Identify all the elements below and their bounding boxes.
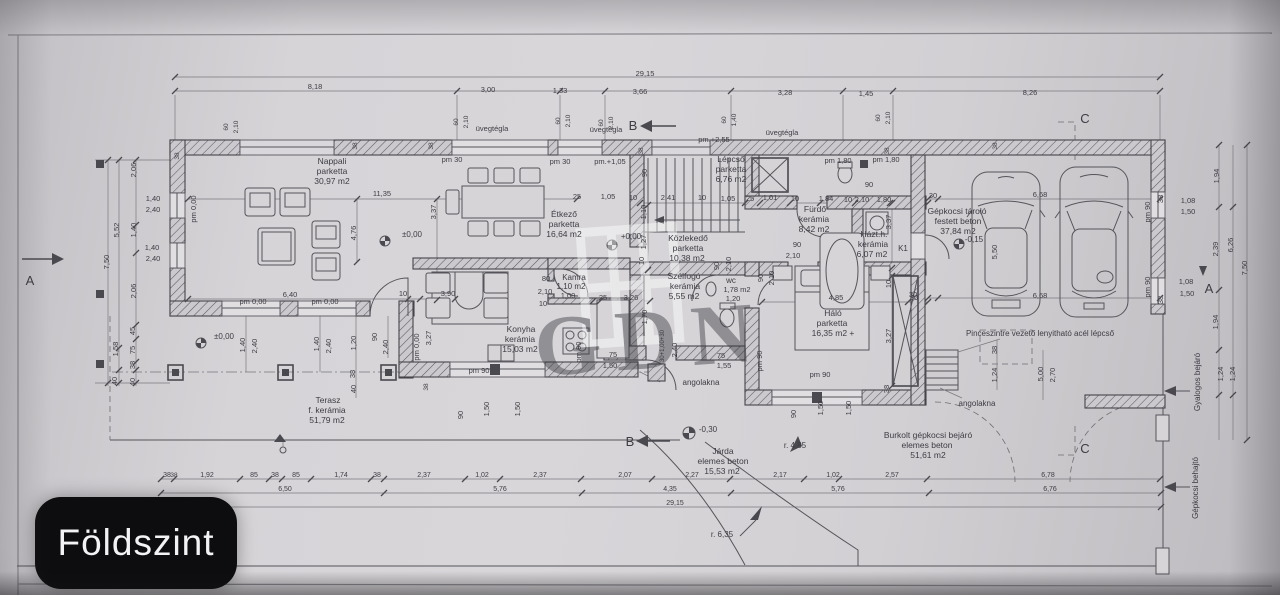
photographed-floor-plan: GDN 29,158,183,001,333,663,281,458,26602…: [0, 0, 1280, 595]
plan-label: 38: [352, 142, 359, 150]
plan-label: 38: [348, 370, 357, 378]
plan-label: pm 90: [574, 342, 583, 363]
plan-label: 1,24: [990, 368, 999, 383]
plan-label: parketta: [673, 243, 704, 253]
plan-label: 1,20: [349, 336, 358, 351]
plan-label: 1,94: [1212, 169, 1221, 184]
plan-label: 38: [174, 152, 181, 160]
plan-label: 1,55: [717, 361, 732, 370]
plan-label: Étkező: [551, 209, 577, 219]
plan-label: 90: [793, 240, 801, 249]
plan-label: 2,40: [324, 339, 333, 354]
plan-label: 90: [370, 333, 379, 341]
plan-label: 90: [789, 410, 798, 418]
plan-label: 6,68: [1033, 291, 1048, 300]
plan-label: A: [26, 273, 35, 288]
plan-label: üvegtégla: [476, 124, 509, 133]
plan-label: 6,78: [1041, 472, 1055, 479]
plan-label: Pinceszintre vezető lenyitható acél lépc…: [966, 329, 1115, 338]
plan-label: 1,05: [601, 192, 616, 201]
plan-label: 1,92: [200, 472, 214, 479]
plan-label: Konyha: [507, 324, 536, 334]
plan-label: -0,15: [965, 235, 984, 244]
plan-label: 8,42 m2: [799, 224, 830, 234]
plan-label: 1,80: [877, 195, 892, 204]
plan-label: 1,78 m2: [723, 285, 750, 294]
plan-label: pm 90: [755, 351, 764, 372]
plan-label: 1,45: [859, 89, 874, 98]
plan-label: 38: [373, 472, 381, 479]
plan-label: 29,15: [636, 69, 655, 78]
plan-label: 2,06: [129, 163, 138, 178]
plan-label: 2,40: [381, 340, 390, 355]
plan-label: 2,40: [146, 254, 161, 263]
plan-label: 1,20: [726, 294, 741, 303]
plan-label: 3,00: [481, 85, 496, 94]
plan-label: 7,50: [1240, 261, 1249, 276]
plan-label: 75: [609, 350, 617, 359]
plan-label: 51,61 m2: [910, 450, 946, 460]
plan-label: 1,74: [334, 472, 348, 479]
plan-label: 5,52: [112, 223, 121, 238]
plan-label: 6,40: [283, 290, 298, 299]
plan-label: parketta: [716, 164, 747, 174]
plan-label: 38: [271, 472, 279, 479]
plan-label: 80: [542, 274, 550, 283]
plan-label: 85: [292, 472, 300, 479]
plan-label: 10: [539, 299, 547, 308]
plan-label: kerámia: [670, 281, 701, 291]
plan-label: 2,10: [855, 195, 870, 204]
plan-label: wc: [725, 276, 736, 285]
plan-label: 38: [428, 142, 435, 150]
plan-label: 38: [884, 147, 891, 155]
plan-label: 6,26: [1226, 238, 1235, 253]
plan-label: 2,10: [463, 115, 470, 128]
plan-label: 2,57: [885, 472, 899, 479]
plan-label: 60: [721, 116, 728, 124]
plan-label: 2,40: [146, 205, 161, 214]
plan-label: 10: [884, 280, 893, 288]
plan-label: 40: [128, 378, 137, 386]
plan-label: 45: [128, 327, 137, 335]
plan-label: üvegtégla: [590, 125, 623, 134]
plan-label: 1,27: [639, 235, 648, 250]
plan-label: 1,50: [1181, 207, 1196, 216]
plan-label: 30,97 m2: [314, 176, 350, 186]
plan-label: parketta: [549, 219, 580, 229]
plan-label: 1,40: [238, 338, 247, 353]
plan-label: 60: [223, 123, 230, 131]
plan-label: 1,94: [1211, 315, 1220, 330]
plan-label: 1,50: [844, 401, 853, 416]
plan-label: pm.+2,55: [698, 135, 729, 144]
plan-label: 2,10: [565, 114, 572, 127]
plan-label: 6,50: [278, 486, 292, 493]
plan-label: 3,66: [633, 87, 648, 96]
plan-label: -0,30: [699, 425, 718, 434]
plan-label: 2,17: [773, 472, 787, 479]
plan-label: pm 1,80: [824, 156, 851, 165]
plan-label: 1,00: [561, 291, 576, 300]
plan-label: 60: [453, 118, 460, 126]
plan-label: 38: [423, 383, 430, 391]
plan-label: 1,05: [721, 194, 736, 203]
plan-label: C: [1080, 441, 1089, 456]
plan-label: 6,76 m2: [716, 174, 747, 184]
plan-label: 1,70: [640, 310, 649, 325]
plan-label: 4,76: [349, 226, 358, 241]
gdn-watermark: GDN: [527, 220, 771, 395]
plan-label: Háló: [824, 308, 842, 318]
plan-label: 2,10: [786, 251, 801, 260]
plan-label: Lépcső: [717, 154, 745, 164]
plan-label: 2,40: [670, 343, 679, 358]
plan-label: 2,27: [685, 472, 699, 479]
plan-label: 16,64 m2: [546, 229, 582, 239]
plan-label: 10: [629, 193, 637, 202]
plan-label: Terasz: [315, 395, 340, 405]
plan-label: pm 90: [810, 370, 831, 379]
plan-label: pm 1,80: [872, 155, 899, 164]
plan-label: 8,18: [308, 82, 323, 91]
plan-label: kerámia: [505, 334, 536, 344]
plan-label: 7,50: [102, 255, 111, 270]
plan-label: angolakna: [959, 399, 996, 408]
plan-label: 1,50: [513, 402, 522, 417]
floor-title: Földszint: [57, 522, 214, 564]
plan-label: A: [1205, 281, 1214, 296]
plan-label: parketta: [817, 318, 848, 328]
plan-label: 3,37: [429, 205, 438, 220]
plan-label: elemes beton: [901, 440, 952, 450]
plan-label: Gépkocsi behajtó: [1191, 457, 1200, 519]
plan-label: 2,37: [533, 472, 547, 479]
plan-label: Gyalogos bejáró: [1193, 352, 1202, 411]
plan-label: 2,06: [129, 284, 138, 299]
plan-label: pm 0,00: [189, 195, 198, 222]
plan-label: 1,50: [482, 402, 491, 417]
plan-label: ±0,00: [402, 230, 423, 239]
plan-label: 1,40: [312, 337, 321, 352]
plan-label: K1: [898, 244, 908, 253]
plan-label: 38: [990, 346, 999, 354]
plan-label: Járda: [712, 446, 734, 456]
plan-label: 38: [992, 142, 999, 150]
plan-label: 1,50: [1180, 289, 1195, 298]
plan-label: 1,40: [146, 194, 161, 203]
plan-label: 90: [456, 411, 465, 419]
plan-label: pm 0,00: [412, 333, 421, 360]
plan-label: Közlekedő: [668, 233, 708, 243]
plan-label: 16,35 m2 +: [812, 328, 855, 338]
plan-label: pm 30: [442, 155, 463, 164]
plan-label: 5,76: [493, 486, 507, 493]
plan-label: 1,24: [1228, 367, 1237, 382]
plan-label: 10,38 m2: [669, 253, 705, 263]
plan-label: 15,03 m2: [502, 344, 538, 354]
plan-label: 51,79 m2: [309, 415, 345, 425]
plan-label: 8,26: [1023, 88, 1038, 97]
plan-label: 3,37: [884, 215, 893, 230]
plan-label: 90: [712, 262, 721, 270]
plan-label: 2,10: [885, 111, 892, 124]
plan-label: 15,53 m2: [704, 466, 740, 476]
plan-label: 2,10: [724, 257, 733, 272]
plan-label: 30: [929, 191, 937, 200]
plan-label: 5,50: [990, 245, 999, 260]
plan-label: 1,40: [145, 243, 160, 252]
plan-label: pm 0,00: [239, 297, 266, 306]
plan-label: 60: [555, 117, 562, 125]
plan-label: 38: [638, 147, 645, 155]
plan-label: 4,85: [829, 293, 844, 302]
plan-label: 4,35: [663, 486, 677, 493]
plan-label: 2,40: [250, 339, 259, 354]
plan-label: 40: [349, 385, 358, 393]
plan-label: 1,10 m2: [557, 282, 586, 291]
plan-label: pm 30: [550, 157, 571, 166]
plan-label: 2,39: [1211, 242, 1220, 257]
plan-label: 10: [637, 257, 646, 265]
plan-label: B: [629, 118, 638, 133]
plan-label: 1,02: [475, 472, 489, 479]
plan-label: 3,28: [778, 88, 793, 97]
plan-label: 1,24: [1216, 367, 1225, 382]
plan-label: 3,27: [424, 331, 433, 346]
plan-label: pm 90: [1143, 202, 1152, 223]
plan-label: parketta: [317, 166, 348, 176]
plan-label: 85: [250, 472, 258, 479]
plan-label: 2,07: [618, 472, 632, 479]
plan-label: 11,35: [373, 189, 391, 198]
plan-label: 1,01: [763, 193, 778, 202]
plan-label: 2,70: [1048, 368, 1057, 383]
plan-label: 2,10: [233, 120, 240, 133]
plan-label: kerámia: [799, 214, 830, 224]
plan-label: Kamra: [562, 273, 586, 282]
plan-label: 1,02: [826, 472, 840, 479]
plan-label: pm 0,00: [311, 297, 338, 306]
plan-label: 5,76: [831, 486, 845, 493]
plan-label: pm.+1,05: [594, 157, 625, 166]
plan-label: pm 90: [1143, 277, 1152, 298]
plan-label: Gépkocsi tároló: [927, 206, 986, 216]
plan-label: Burkolt gépkocsi bejáró: [884, 430, 973, 440]
plan-label: 5,00: [1036, 367, 1045, 382]
plan-label: r. 6,35: [711, 530, 734, 539]
plan-label: 6,07 m2: [857, 249, 888, 259]
plan-label: Nappali: [318, 156, 347, 166]
plan-label: ±0,00: [214, 332, 235, 341]
plan-label: üvegtégla: [766, 128, 799, 137]
plan-label: Házt.h.: [861, 229, 888, 239]
plan-label: B: [626, 434, 635, 449]
plan-label: kerámia: [858, 239, 889, 249]
plan-label: 10: [698, 193, 706, 202]
plan-label: 90: [756, 274, 765, 282]
plan-label: 30: [909, 290, 917, 299]
plan-label: 2,10: [767, 271, 776, 286]
plan-label: 90: [640, 169, 649, 177]
plan-label: festett beton: [935, 216, 982, 226]
plan-label: 2,41: [661, 193, 676, 202]
plan-label: f. kerámia: [308, 405, 346, 415]
plan-label: 90: [865, 180, 873, 189]
plan-label: 2,37: [417, 472, 431, 479]
plan-label: 3,90: [441, 289, 456, 298]
plan-label: 30+1,00+30: [660, 329, 666, 362]
plan-label: angolakna: [683, 378, 720, 387]
plan-label: 3,26: [624, 293, 639, 302]
title-box: Földszint: [35, 497, 237, 589]
plan-label: 1,08: [1181, 196, 1196, 205]
plan-label: 1,50: [603, 361, 618, 370]
plan-label: pm 90: [469, 366, 490, 375]
plan-label: Szélfogó: [667, 271, 700, 281]
plan-label: 1,08: [1179, 277, 1194, 286]
plan-label: 1,40: [731, 113, 738, 126]
plan-label: 29,15: [666, 500, 684, 507]
plan-label: 2,10: [538, 287, 553, 296]
plan-label: 10: [844, 195, 852, 204]
plan-label: 3,27: [884, 329, 893, 344]
plan-label: 60: [875, 114, 882, 122]
plan-label: 1,50: [816, 401, 825, 416]
plan-label: 5,55 m2: [669, 291, 700, 301]
plan-label: 6,68: [1033, 190, 1048, 199]
plan-label: C: [1080, 111, 1089, 126]
plan-label: elemes beton: [697, 456, 748, 466]
plan-label: 75: [717, 351, 725, 360]
plan-label: r. 4,85: [784, 441, 807, 450]
plan-label: 10: [399, 289, 407, 298]
plan-label: 75: [128, 346, 137, 354]
plan-label: 6,76: [1043, 486, 1057, 493]
plan-label: Fürdő: [804, 204, 826, 214]
